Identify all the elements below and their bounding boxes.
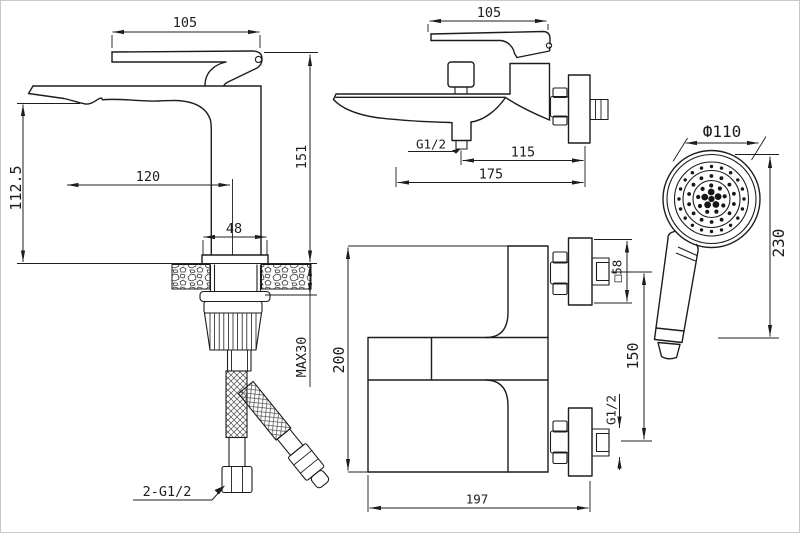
- dim-basin-base-width: 48: [226, 221, 242, 237]
- leader-arrow-icon: [215, 486, 226, 495]
- basin-faucet-view: 105 112.5 151 120 48 MAX30 2-G1/2: [7, 15, 333, 500]
- label-bath-outlet: G1/2: [416, 137, 446, 152]
- lock-nut-band: [204, 302, 262, 314]
- dim-front-width: 197: [466, 492, 489, 507]
- inlet-connection-top: [551, 238, 610, 305]
- dim-basin-lever: 105: [173, 15, 197, 31]
- handle-connector: [658, 343, 680, 359]
- shower-handle-outline: [655, 232, 699, 359]
- hose-nut-1: [222, 467, 252, 493]
- handle-indicator-dot: [255, 56, 261, 62]
- base-escutcheon: [202, 255, 268, 263]
- wall-nut: [551, 97, 569, 118]
- dim-shower-length: 230: [769, 229, 788, 258]
- countertop-section: [17, 264, 317, 292]
- dim-front-height: 200: [330, 346, 348, 373]
- hand-shower-view: Ф110 230: [655, 122, 789, 359]
- dim-bath-outlet-to-wall: 115: [511, 145, 535, 161]
- wall-thread: [590, 100, 608, 120]
- dim-bath-lever: 105: [477, 5, 501, 21]
- threaded-shank: [211, 265, 261, 292]
- shower-head-outline: [663, 151, 760, 248]
- bath-mixer-side-view: 105 G1/2 115 175: [334, 5, 609, 187]
- hose-nut-2: [288, 443, 325, 481]
- diverter-knob: [448, 62, 474, 87]
- nozzle-dots: [677, 165, 745, 233]
- bath-side-outline: [334, 32, 609, 150]
- dim-basin-reach: 120: [136, 169, 160, 185]
- dim-basin-height: 151: [294, 145, 310, 169]
- faucet-dimension-drawing: 105 112.5 151 120 48 MAX30 2-G1/2: [0, 0, 800, 533]
- supply-hose-1: [226, 371, 247, 438]
- supply-hose-2: [237, 380, 334, 492]
- dim-basin-max-counter: MAX30: [294, 337, 310, 378]
- spout-outlet: [456, 141, 467, 150]
- bath-mixer-front-view: 200 197 □58 150 G1/2: [330, 238, 652, 512]
- dim-front-escutcheon: □58: [610, 260, 625, 283]
- handle-indicator-dot: [546, 43, 551, 48]
- dim-bath-depth: 175: [479, 167, 503, 183]
- wall-escutcheon: [569, 75, 591, 143]
- washer-plate: [200, 292, 270, 302]
- bath-front-outline: [348, 238, 609, 476]
- technical-drawing-page: 105 112.5 151 120 48 MAX30 2-G1/2: [0, 0, 800, 533]
- dim-front-inlet-centers: 150: [624, 342, 642, 369]
- label-front-inlet-thread: G1/2: [604, 395, 619, 425]
- label-basin-inlet-hoses: 2-G1/2: [143, 484, 192, 500]
- inlet-connection-bottom: [551, 408, 610, 476]
- dim-basin-spout-height: 112.5: [7, 165, 25, 210]
- dim-shower-diameter: Ф110: [703, 122, 742, 141]
- image-border: [1, 1, 800, 533]
- basin-undermount-hardware: [200, 292, 333, 493]
